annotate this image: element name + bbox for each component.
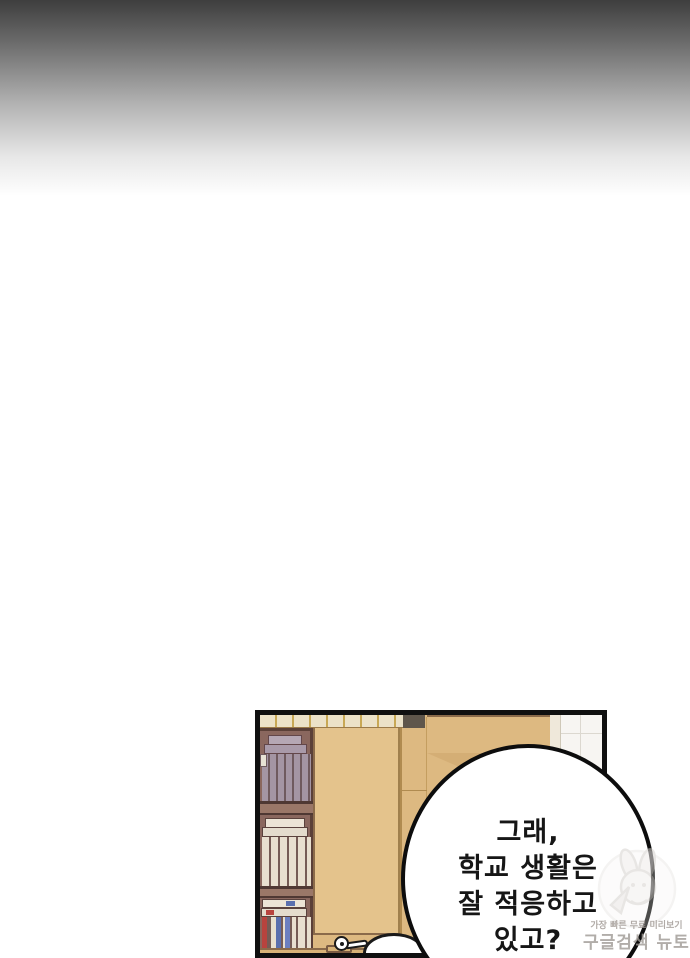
blue-tape-spine	[285, 917, 292, 951]
red-tape-label	[266, 910, 274, 915]
wardrobe-top-edge	[427, 715, 552, 717]
stacked-tape	[262, 827, 308, 837]
shelf-board	[260, 801, 313, 815]
speech-bubble-line: 그래,	[497, 815, 560, 851]
speech-bubble-line: 학교 생활은	[458, 851, 598, 887]
bookshelf	[260, 728, 313, 948]
blue-tape-label	[286, 901, 295, 906]
cabinet-door	[313, 728, 400, 935]
book-row-top	[262, 754, 311, 801]
top-fade-gradient	[0, 0, 690, 196]
watermark: 가장 빠른 무료 미리보기 구글검색 뉴토끼	[583, 843, 690, 955]
rabbit-mascot-icon	[591, 843, 683, 929]
white-book	[260, 754, 267, 767]
webtoon-page: 그래, 학교 생활은 잘 적응하고 있고? 가장 빠른 무료 미리보기 구글검색…	[0, 0, 690, 958]
tape-row-middle	[262, 837, 311, 886]
top-trim-dark-block	[403, 715, 425, 728]
red-tape-spine	[262, 917, 269, 951]
watermark-brand: 구글검색 뉴토끼	[583, 928, 690, 953]
speech-bubble-line: 있고?	[494, 923, 562, 958]
desk-lamp-joint-screw	[340, 942, 344, 946]
speech-bubble-line: 잘 적응하고	[458, 887, 598, 923]
stacked-book	[264, 744, 307, 754]
wardrobe-panel-line	[402, 790, 427, 791]
blue-tape-spine	[276, 917, 283, 951]
tile-grout-horizontal	[561, 733, 602, 734]
stacked-tape	[262, 899, 306, 908]
top-trim	[260, 715, 425, 728]
shelf-board	[260, 886, 313, 898]
